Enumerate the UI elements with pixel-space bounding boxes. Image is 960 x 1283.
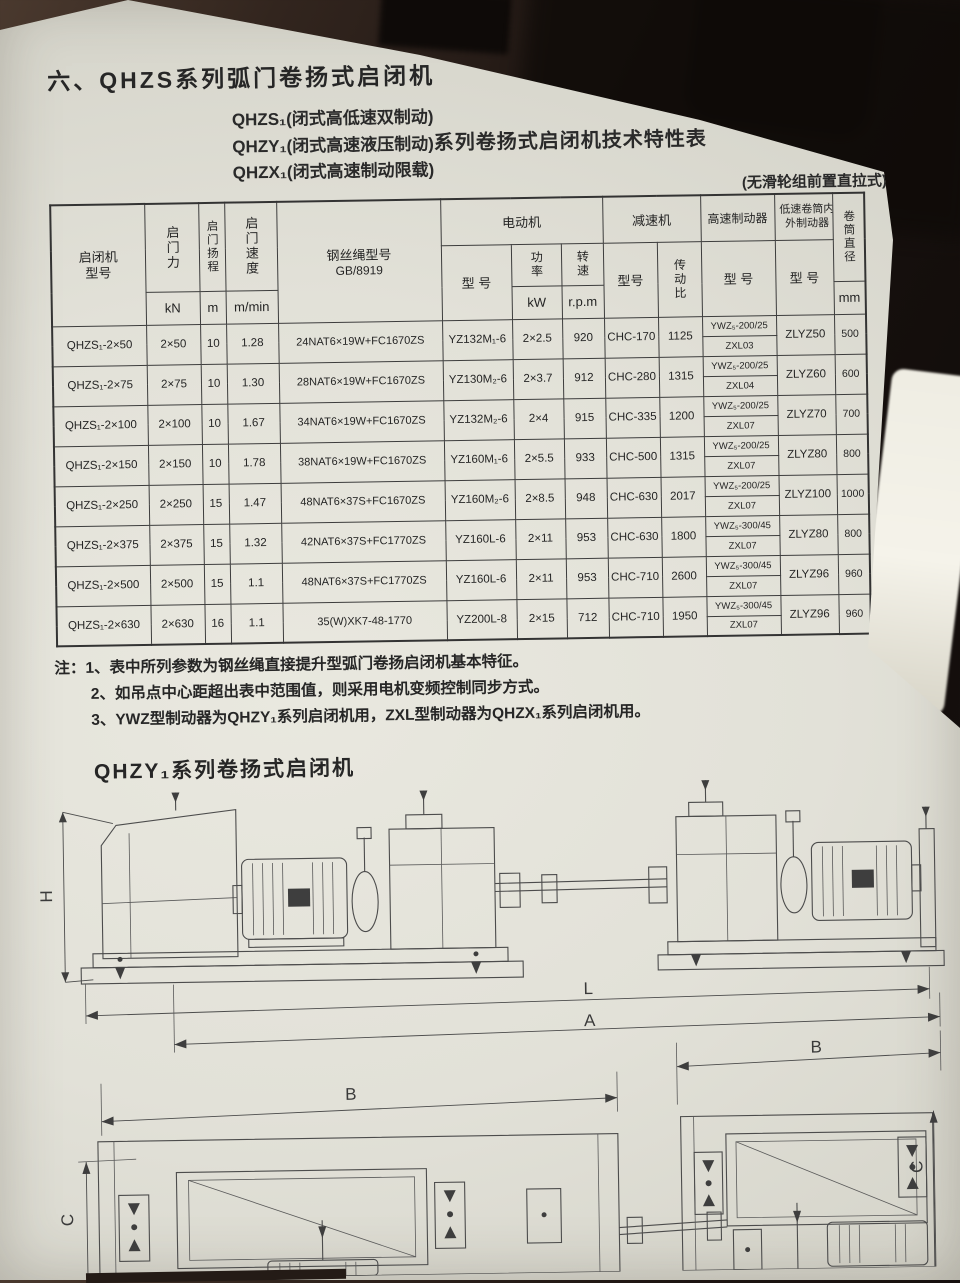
cell-stroke: 10 xyxy=(201,404,228,444)
cell-ratio: 2017 xyxy=(661,476,706,517)
dim-label-l: L xyxy=(583,979,593,998)
background-furniture-post xyxy=(378,0,512,54)
wire-rope-label: 钢丝绳型号 xyxy=(278,244,439,266)
cell-rpm: 912 xyxy=(563,358,606,399)
cell-rpm: 915 xyxy=(563,398,606,439)
cell-model: QHZS₁-2×375 xyxy=(55,525,150,566)
cell-motor: YZ200L-8 xyxy=(446,599,517,640)
col-group-reducer: 减速机 xyxy=(602,195,701,243)
cell-speed: 1.67 xyxy=(227,403,280,444)
left-hoist-unit xyxy=(78,787,523,984)
cell-force: 2×630 xyxy=(150,604,205,645)
cell-stroke: 16 xyxy=(204,604,231,644)
cell-model: QHZS₁-2×150 xyxy=(54,445,149,486)
cell-hs-brake-ywz: YWZ₅-200/25 xyxy=(703,395,777,416)
unit-drum: mm xyxy=(833,281,866,314)
dim-c-left: C xyxy=(57,1159,138,1280)
cell-ratio: 1950 xyxy=(662,596,707,637)
cell-rpm: 920 xyxy=(562,318,605,359)
cell-motor: YZ160M₁-6 xyxy=(444,439,515,480)
col-header-hs-brake-model: 型 号 xyxy=(701,240,776,316)
spec-table-head: 启闭机型号 启门力 启门扬程 启门速度 钢丝绳型号 GB/8919 电动机 减速… xyxy=(50,193,866,327)
cell-hs-brake-zxl: ZXL07 xyxy=(705,495,779,516)
cell-model: QHZS₁-2×100 xyxy=(53,405,148,446)
series-subtitle: QHZS₁(闭式高低速双制动) QHZY₁(闭式高速液压制动)系列卷扬式启闭机技… xyxy=(232,100,708,186)
cell-reducer: CHC-170 xyxy=(604,317,659,358)
series-desc: (闭式高速制动限载) xyxy=(287,160,435,181)
cell-speed: 1.28 xyxy=(226,323,279,364)
cell-rpm: 712 xyxy=(566,598,609,639)
cell-speed: 1.32 xyxy=(229,523,282,564)
cell-motor: YZ132M₁-6 xyxy=(442,319,513,360)
cell-model: QHZS₁-2×250 xyxy=(55,485,150,526)
bearing-block xyxy=(694,1152,723,1214)
col-header-machine-model: 启闭机型号 xyxy=(50,204,146,326)
cell-motor: YZ130M₂-6 xyxy=(443,359,514,400)
cell-rope: 28NAT6×19W+FC1670ZS xyxy=(279,360,444,403)
cell-power: 2×15 xyxy=(516,598,567,639)
cell-stroke: 15 xyxy=(203,484,230,524)
col-group-motor: 电动机 xyxy=(440,197,603,246)
note-1: 1、表中所列参数为钢丝绳直接提升型弧门卷扬启闭机基本特征。 xyxy=(85,653,528,677)
motor-fins xyxy=(839,1224,906,1263)
cell-reducer: CHC-500 xyxy=(606,437,661,478)
page-content: 六、QHZS系列弧门卷扬式启闭机 QHZS₁(闭式高低速双制动) QHZY₁(闭… xyxy=(0,0,960,1281)
cell-hs-brake-zxl: ZXL07 xyxy=(707,615,781,636)
unit-power: kW xyxy=(511,285,562,319)
notes-block: 注：1、表中所列参数为钢丝绳直接提升型弧门卷扬启闭机基本特征。 2、如吊点中心距… xyxy=(54,643,885,734)
cell-ls-brake: ZLYZ80 xyxy=(779,514,838,555)
cell-ratio: 1315 xyxy=(660,436,705,477)
cell-ratio: 2600 xyxy=(662,556,707,597)
col-header-lifting-force: 启门力 xyxy=(144,203,199,292)
cell-power: 2×11 xyxy=(515,518,566,559)
cell-hs-brake-zxl: ZXL07 xyxy=(704,415,778,436)
right-hoist-unit-plan xyxy=(681,1113,935,1271)
cell-rope: 35(W)XK7-48-1770 xyxy=(282,600,447,643)
left-hoist-unit-plan xyxy=(98,1134,620,1280)
cell-ls-brake: ZLYZ100 xyxy=(779,474,838,515)
dim-b-right: B xyxy=(676,1031,941,1105)
dim-a: A xyxy=(173,973,940,1053)
cell-drum: 500 xyxy=(834,314,867,354)
col-header-motor-power: 功率 xyxy=(511,243,562,286)
cell-ls-brake: ZLYZ50 xyxy=(776,314,835,355)
wire-rope-standard: GB/8919 xyxy=(279,263,440,280)
cell-motor: YZ160L-6 xyxy=(446,559,517,600)
cell-reducer: CHC-630 xyxy=(607,517,662,558)
cell-reducer: CHC-710 xyxy=(608,557,663,598)
dim-label-b-left: B xyxy=(345,1085,357,1104)
cell-drum: 960 xyxy=(838,554,871,594)
cell-drum: 800 xyxy=(837,514,870,554)
cell-hs-brake-ywz: YWZ₅-300/45 xyxy=(706,555,780,576)
right-hoist-unit xyxy=(655,776,944,969)
col-header-reducer-ratio: 传动比 xyxy=(657,241,702,317)
cell-speed: 1.1 xyxy=(230,603,283,644)
cell-power: 2×5.5 xyxy=(514,438,565,479)
cell-stroke: 10 xyxy=(201,364,228,404)
cell-rpm: 953 xyxy=(566,558,609,599)
cell-motor: YZ160L-6 xyxy=(445,519,516,560)
cell-force: 2×500 xyxy=(150,564,205,605)
cell-motor: YZ160M₂-6 xyxy=(445,479,516,520)
cell-drum: 1000 xyxy=(837,474,870,514)
cell-hs-brake-ywz: YWZ₅-300/45 xyxy=(705,515,779,536)
col-header-motor-speed: 转速 xyxy=(561,243,604,286)
cell-power: 2×11 xyxy=(516,558,567,599)
cell-force: 2×250 xyxy=(149,484,204,525)
table-annotation: (无滑轮组前置直拉式) xyxy=(742,169,887,192)
cell-hs-brake-zxl: ZXL07 xyxy=(704,455,778,476)
table-title: 系列卷扬式启闭机技术特性表 xyxy=(434,128,707,154)
cell-rope: 42NAT6×37S+FC1770ZS xyxy=(281,520,446,563)
cell-ratio: 1800 xyxy=(661,516,706,557)
page-title: 六、QHZS系列弧门卷扬式启闭机 xyxy=(47,56,435,96)
cell-power: 2×3.7 xyxy=(513,358,564,399)
col-header-reducer-model: 型号 xyxy=(603,242,658,318)
spec-table: 启闭机型号 启门力 启门扬程 启门速度 钢丝绳型号 GB/8919 电动机 减速… xyxy=(49,192,872,648)
hoist-engineering-drawing: H L A xyxy=(20,770,952,1280)
cell-rope: 38NAT6×19W+FC1670ZS xyxy=(280,440,445,483)
bearing-block xyxy=(119,1195,150,1261)
cell-force: 2×75 xyxy=(147,364,202,405)
col-header-ls-brake-model: 型 号 xyxy=(775,239,834,315)
cell-rope: 48NAT6×37S+FC1670ZS xyxy=(281,480,446,523)
cell-drum: 960 xyxy=(838,594,871,634)
bearing-block xyxy=(435,1182,466,1248)
cell-stroke: 10 xyxy=(202,444,229,484)
cell-reducer: CHC-710 xyxy=(608,597,663,638)
series-code: QHZY₁ xyxy=(232,137,287,157)
series-desc: (闭式高低速双制动) xyxy=(286,107,434,128)
cell-reducer: CHC-280 xyxy=(605,357,660,398)
cell-stroke: 10 xyxy=(200,324,227,364)
cell-ls-brake: ZLYZ96 xyxy=(780,554,839,595)
cell-rpm: 953 xyxy=(565,518,608,559)
col-header-lifting-speed: 启门速度 xyxy=(224,202,277,291)
cell-drum: 700 xyxy=(835,394,868,434)
cell-ls-brake: ZLYZ80 xyxy=(778,434,837,475)
cell-rpm: 933 xyxy=(564,438,607,479)
cell-hs-brake-ywz: YWZ₅-200/25 xyxy=(702,315,776,336)
cell-motor: YZ132M₂-6 xyxy=(443,399,514,440)
cell-ls-brake: ZLYZ70 xyxy=(777,394,836,435)
cell-power: 2×8.5 xyxy=(515,478,566,519)
notes-label: 注： xyxy=(54,660,85,677)
cell-hs-brake-zxl: ZXL07 xyxy=(706,575,780,596)
cell-speed: 1.47 xyxy=(229,483,282,524)
col-group-ls-brake: 低速卷筒内外制动器 xyxy=(774,193,833,240)
cell-speed: 1.30 xyxy=(227,363,280,404)
cell-ls-brake: ZLYZ96 xyxy=(780,594,839,635)
cell-model: QHZS₁-2×50 xyxy=(52,325,147,366)
cell-hs-brake-ywz: YWZ₅-200/25 xyxy=(705,475,779,496)
dim-l: L xyxy=(85,967,930,1024)
cell-drum: 800 xyxy=(836,434,869,474)
cell-hs-brake-zxl: ZXL07 xyxy=(705,535,779,556)
cell-ratio: 1315 xyxy=(659,356,704,397)
dim-b-left: B xyxy=(101,1072,618,1136)
cell-hs-brake-ywz: YWZ₅-300/45 xyxy=(706,595,780,616)
plan-connecting-shaft xyxy=(619,1212,727,1244)
plan-view: B B xyxy=(55,1031,944,1281)
cell-force: 2×100 xyxy=(147,404,202,445)
cell-rope: 24NAT6×19W+FC1670ZS xyxy=(278,320,443,363)
col-header-drum-diameter: 卷筒直径 xyxy=(832,193,865,281)
connecting-shaft xyxy=(495,867,668,908)
cell-stroke: 15 xyxy=(203,524,230,564)
cell-rpm: 948 xyxy=(565,478,608,519)
dim-label-a: A xyxy=(584,1011,596,1030)
series-code: QHZS₁ xyxy=(232,110,287,130)
cell-force: 2×50 xyxy=(146,324,201,365)
cell-power: 2×2.5 xyxy=(512,318,563,359)
cell-model: QHZS₁-2×630 xyxy=(56,605,151,646)
side-view: H L A xyxy=(35,776,945,1054)
cell-speed: 1.1 xyxy=(230,563,283,604)
cell-hs-brake-ywz: YWZ₅-200/25 xyxy=(703,355,777,376)
cell-model: QHZS₁-2×500 xyxy=(56,565,151,606)
unit-speed: m/min xyxy=(226,290,279,324)
paper-page: 六、QHZS系列弧门卷扬式启闭机 QHZS₁(闭式高低速双制动) QHZY₁(闭… xyxy=(0,0,960,1280)
cell-rope: 48NAT6×37S+FC1770ZS xyxy=(282,560,447,603)
spec-table-body: QHZS₁-2×502×50101.2824NAT6×19W+FC1670ZSY… xyxy=(52,314,871,647)
series-code: QHZX₁ xyxy=(233,163,288,183)
cell-hs-brake-zxl: ZXL04 xyxy=(703,375,777,396)
cell-reducer: CHC-630 xyxy=(607,477,662,518)
series-desc: (闭式高速液压制动) xyxy=(286,134,434,155)
col-header-lifting-stroke: 启门扬程 xyxy=(198,203,225,291)
col-group-hs-brake: 高速制动器 xyxy=(700,194,775,241)
cell-ls-brake: ZLYZ60 xyxy=(777,354,836,395)
dim-label-c-right: C xyxy=(907,1160,926,1173)
cell-force: 2×150 xyxy=(148,444,203,485)
cell-power: 2×4 xyxy=(513,398,564,439)
cell-rope: 34NAT6×19W+FC1670ZS xyxy=(279,400,444,443)
col-header-wire-rope: 钢丝绳型号 GB/8919 xyxy=(276,199,442,323)
cell-ratio: 1125 xyxy=(658,316,703,357)
cell-hs-brake-zxl: ZXL03 xyxy=(702,335,776,356)
unit-rpm: r.p.m xyxy=(561,285,604,319)
cell-drum: 600 xyxy=(835,354,868,394)
col-header-motor-model: 型 号 xyxy=(441,244,512,320)
unit-force: kN xyxy=(146,291,201,325)
cell-reducer: CHC-335 xyxy=(605,397,660,438)
unit-stroke: m xyxy=(200,291,227,324)
dim-label-h: H xyxy=(37,890,56,903)
cell-ratio: 1200 xyxy=(659,396,704,437)
cell-force: 2×375 xyxy=(149,524,204,565)
dim-label-c-left: C xyxy=(58,1214,77,1227)
cell-speed: 1.78 xyxy=(228,443,281,484)
cell-hs-brake-ywz: YWZ₅-200/25 xyxy=(704,435,778,456)
cell-stroke: 15 xyxy=(204,564,231,604)
cell-model: QHZS₁-2×75 xyxy=(53,365,148,406)
dim-label-b-right: B xyxy=(810,1037,822,1056)
